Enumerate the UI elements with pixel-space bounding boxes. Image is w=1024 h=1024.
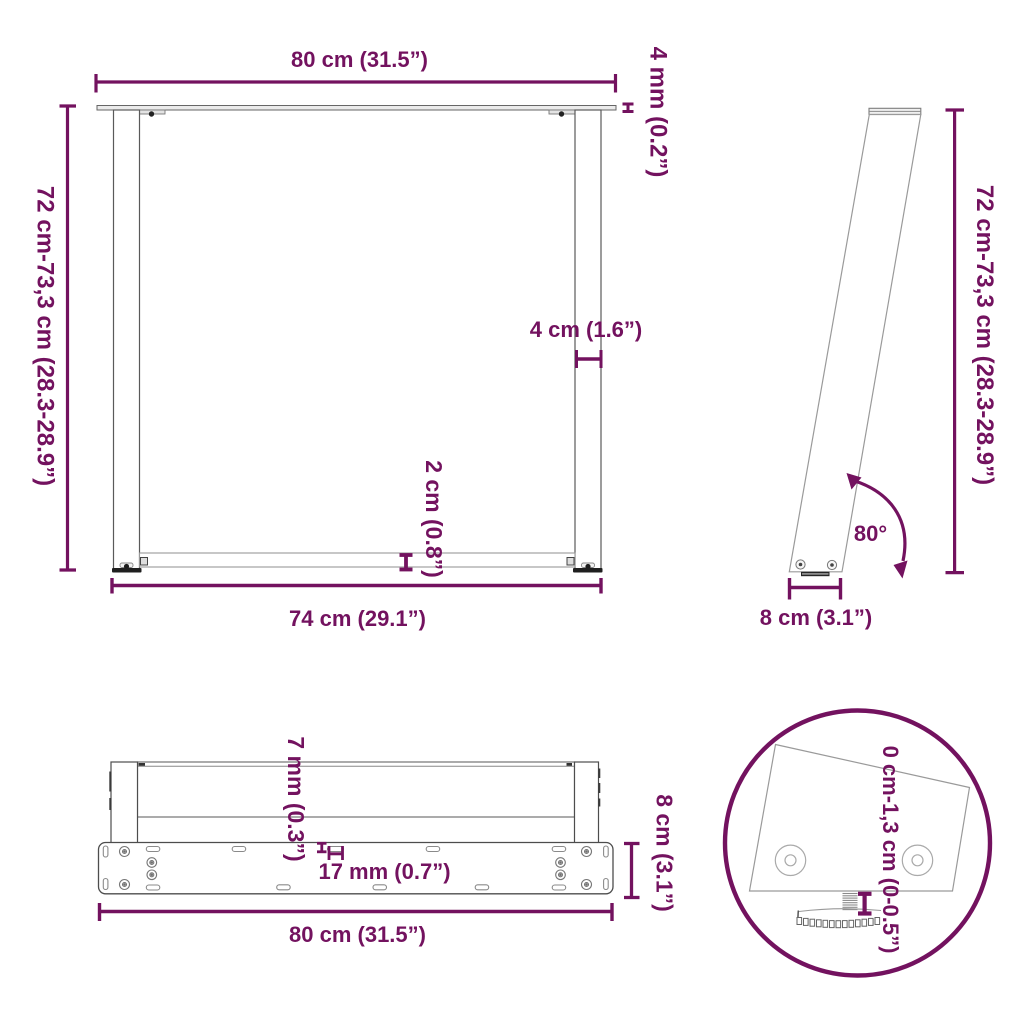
svg-text:80 cm (31.5”): 80 cm (31.5”) [289,922,426,947]
svg-text:8 cm (3.1”): 8 cm (3.1”) [760,605,873,630]
svg-text:4 cm (1.6”): 4 cm (1.6”) [530,317,643,342]
svg-text:72 cm-73,3 cm (28.3-28.9”): 72 cm-73,3 cm (28.3-28.9”) [32,186,59,486]
svg-text:4 mm (0.2”): 4 mm (0.2”) [645,47,672,178]
svg-text:80°: 80° [854,521,887,546]
svg-text:17 mm (0.7”): 17 mm (0.7”) [318,859,450,884]
svg-text:80 cm (31.5”): 80 cm (31.5”) [291,47,428,72]
svg-text:74 cm (29.1”): 74 cm (29.1”) [289,606,426,631]
svg-text:8 cm (3.1”): 8 cm (3.1”) [652,794,678,912]
svg-text:2 cm (0.8”): 2 cm (0.8”) [421,460,447,578]
svg-text:72 cm-73,3 cm (28.3-28.9”): 72 cm-73,3 cm (28.3-28.9”) [971,185,998,485]
svg-text:7 mm (0.3”): 7 mm (0.3”) [283,736,309,861]
svg-text:0 cm-1,3 cm (0-0.5”): 0 cm-1,3 cm (0-0.5”) [878,746,903,954]
